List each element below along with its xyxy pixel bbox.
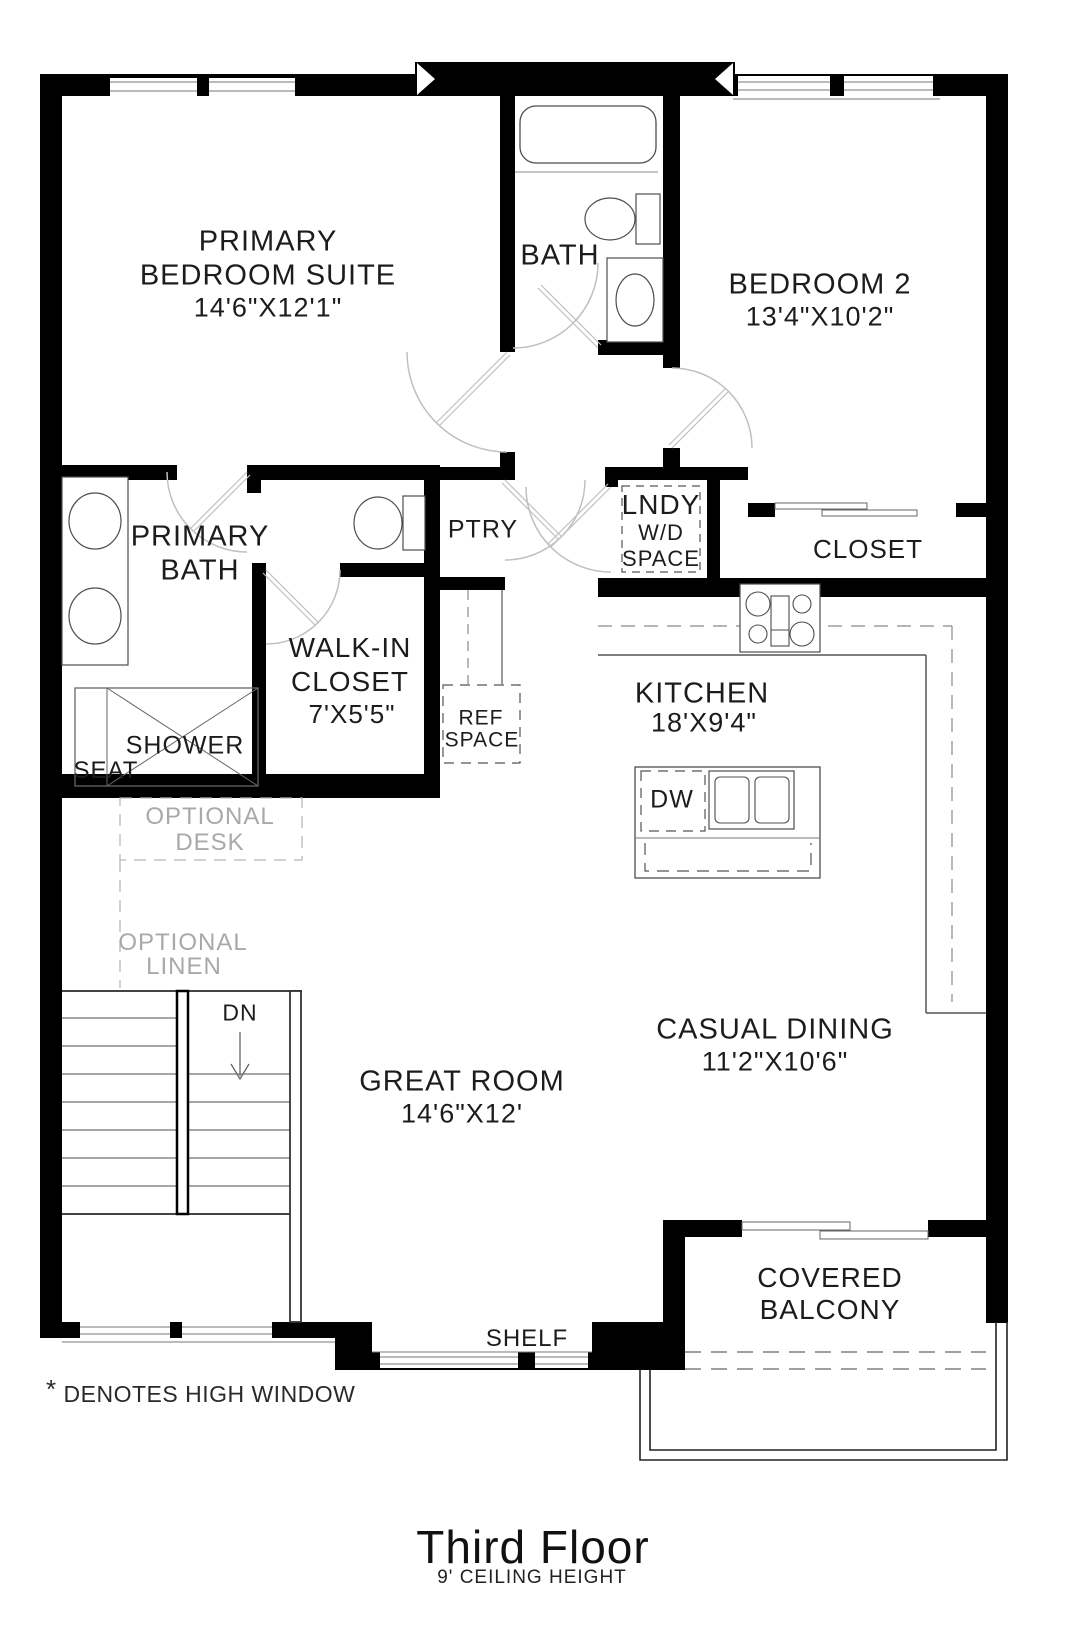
room-label-primary-bath-line2: BATH (160, 557, 239, 586)
room-label-kitchen: KITCHEN (635, 680, 769, 709)
room-label-primary-bedroom-line2: BEDROOM SUITE (140, 262, 396, 291)
room-dims-great-room: 14'6"X12' (401, 1101, 523, 1128)
feature-label-ref-line2: SPACE (445, 730, 520, 751)
stove (740, 584, 820, 652)
page-subtitle: 9' CEILING HEIGHT (437, 1567, 627, 1589)
closet-bypass-doors (775, 503, 917, 516)
room-label-walk-in-closet-line2: CLOSET (291, 668, 409, 696)
room-label-laundry-line3: SPACE (622, 548, 700, 570)
room-label-walk-in-closet-line1: WALK-IN (289, 634, 412, 662)
kitchen-island (635, 767, 820, 878)
room-dims-primary-bedroom: 14'6"X12'1" (194, 295, 343, 322)
room-label-bedroom2: BEDROOM 2 (728, 271, 911, 300)
feature-label-optional-linen-line2: LINEN (146, 955, 222, 979)
feature-label-optional-linen-line1: OPTIONAL (118, 931, 247, 955)
room-label-pantry: PTRY (448, 518, 518, 543)
feature-label-dishwasher: DW (650, 788, 694, 813)
room-label-great-room: GREAT ROOM (359, 1068, 565, 1097)
balcony (640, 1222, 1007, 1460)
stair-rail (290, 991, 301, 1322)
room-label-closet: CLOSET (813, 536, 923, 562)
feature-label-shelf: SHELF (486, 1327, 568, 1351)
room-label-primary-bath-line1: PRIMARY (131, 523, 270, 552)
room-label-laundry-line1: LNDY (622, 491, 701, 519)
feature-label-shower: SHOWER (126, 734, 245, 759)
footnote-asterisk: * (46, 1374, 57, 1404)
room-label-balcony-line1: COVERED (757, 1264, 902, 1292)
room-label-laundry-line2: W/D (638, 522, 684, 544)
feature-label-ref-line1: REF (459, 708, 504, 729)
room-label-casual-dining: CASUAL DINING (656, 1016, 894, 1045)
high-window-footnote: * DENOTES HIGH WINDOW (46, 1374, 355, 1408)
room-dims-walk-in-closet: 7'X5'5" (309, 701, 396, 727)
bath-fixtures (62, 106, 663, 665)
stairs (62, 991, 302, 1322)
feature-label-optional-desk-line2: DESK (175, 831, 244, 855)
page-title: Third Floor (416, 1520, 649, 1574)
room-label-balcony-line2: BALCONY (760, 1296, 901, 1324)
room-label-primary-bedroom-line1: PRIMARY (199, 228, 338, 257)
feature-label-optional-desk-line1: OPTIONAL (145, 805, 274, 829)
feature-label-stairs-down: DN (222, 1002, 257, 1025)
room-dims-bedroom2: 13'4"X10'2" (746, 304, 895, 331)
room-label-bath: BATH (520, 242, 599, 271)
room-dims-kitchen: 18'X9'4" (651, 710, 757, 737)
footnote-text: DENOTES HIGH WINDOW (64, 1381, 356, 1407)
room-dims-casual-dining: 11'2"X10'6" (702, 1049, 849, 1076)
balcony-railing (640, 1322, 1007, 1460)
floor-plan-page: PRIMARY BEDROOM SUITE 14'6"X12'1" BATH B… (0, 0, 1080, 1639)
feature-label-seat: SEAT (74, 759, 139, 783)
